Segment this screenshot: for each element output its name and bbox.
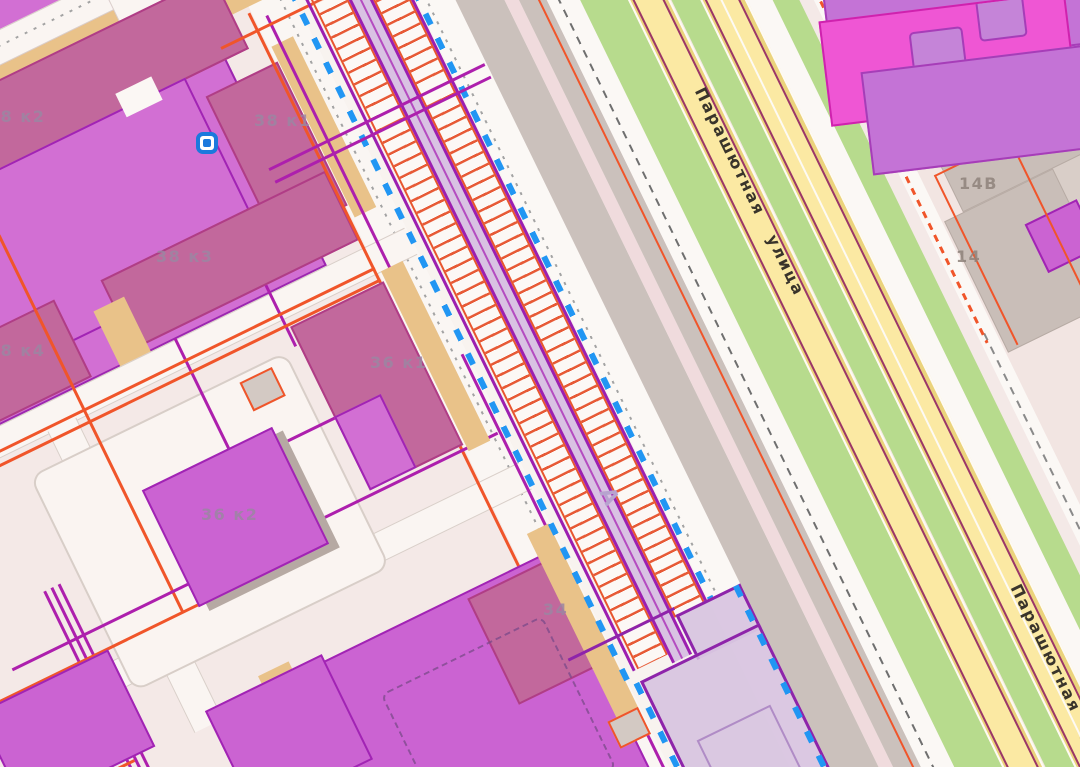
building-label-38k3: 38 к3 (156, 247, 213, 266)
building-label-14v: 14В (959, 174, 998, 193)
poi-marker[interactable] (196, 132, 218, 154)
building-label-38k4: 38 к4 (0, 341, 45, 360)
building-label-36k1: 36 к1 (370, 353, 427, 372)
building-label-38k1: 38 к1 (254, 111, 311, 130)
building-label-14: 14 (956, 247, 981, 266)
map-overlay-layer: 38 к2 38 к1 38 к3 38 к4 36 к1 36 к2 34 1… (0, 0, 1080, 767)
building-label-34: 34 (543, 600, 568, 619)
map-canvas[interactable]: Парашютная улица Парашютная улица 38 к2 … (0, 0, 1080, 767)
building-courtyard-hole (974, 0, 1028, 42)
building-label-38k2: 38 к2 (0, 107, 45, 126)
building-label-36k2: 36 к2 (201, 505, 258, 524)
zone-letter-label: А (594, 483, 624, 509)
